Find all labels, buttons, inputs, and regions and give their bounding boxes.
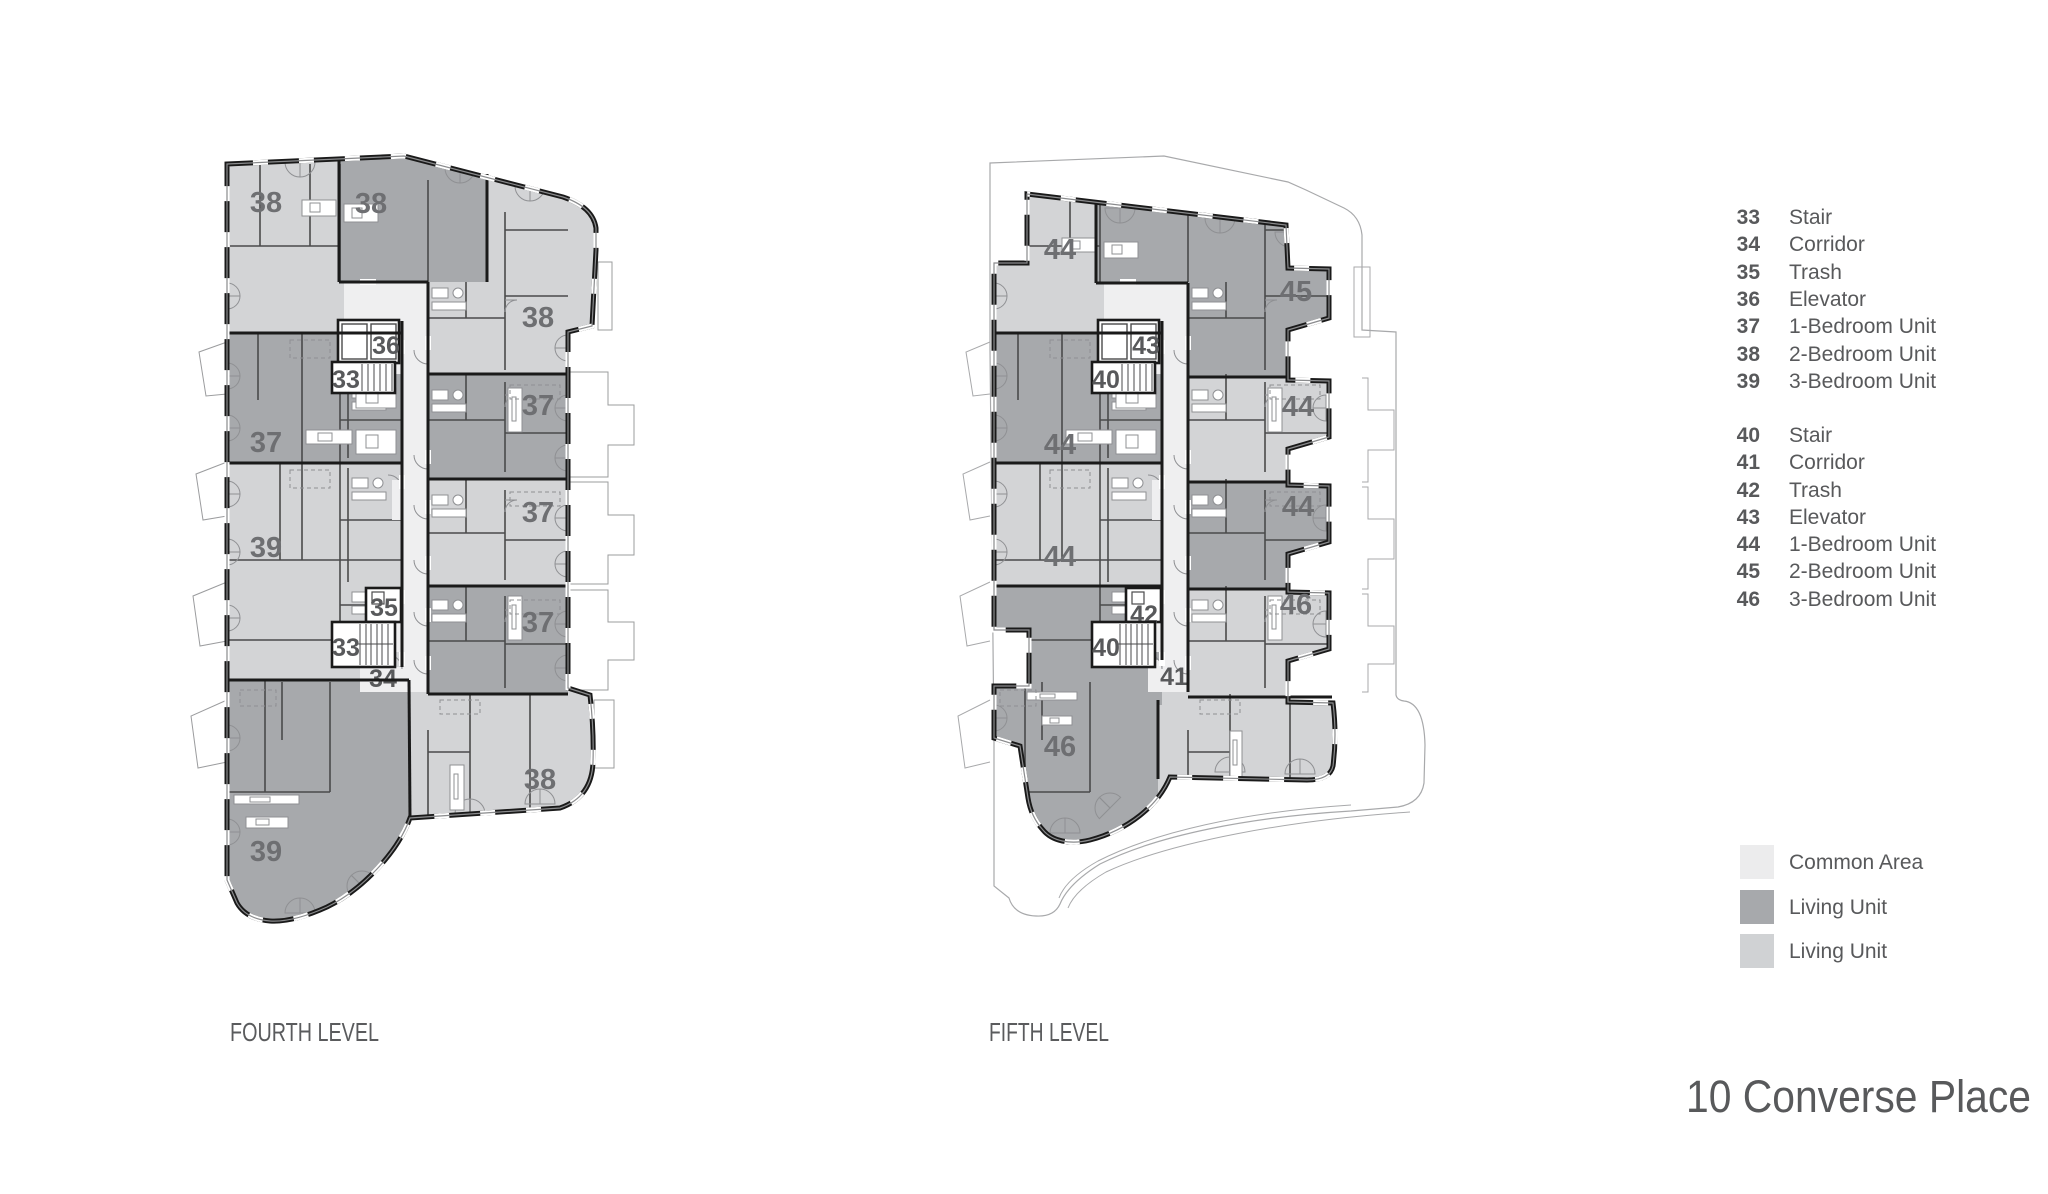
svg-text:43: 43: [1132, 332, 1160, 360]
svg-text:Living Unit: Living Unit: [1789, 896, 1887, 919]
svg-text:45: 45: [1737, 560, 1761, 583]
svg-text:40: 40: [1092, 634, 1120, 662]
svg-text:44: 44: [1044, 429, 1076, 461]
svg-text:FIFTH LEVEL: FIFTH LEVEL: [989, 1017, 1109, 1047]
svg-text:36: 36: [372, 332, 400, 360]
svg-text:FOURTH LEVEL: FOURTH LEVEL: [230, 1017, 379, 1047]
svg-text:Living Unit: Living Unit: [1789, 940, 1887, 963]
svg-text:41: 41: [1737, 451, 1761, 474]
svg-text:33: 33: [332, 634, 360, 662]
svg-text:36: 36: [1737, 288, 1760, 311]
svg-text:41: 41: [1160, 663, 1188, 691]
svg-text:39: 39: [250, 532, 282, 564]
svg-text:Corridor: Corridor: [1789, 233, 1865, 256]
svg-text:46: 46: [1280, 589, 1312, 621]
svg-text:46: 46: [1737, 588, 1760, 611]
svg-text:46: 46: [1044, 731, 1076, 763]
svg-text:44: 44: [1044, 234, 1076, 266]
svg-text:33: 33: [332, 366, 360, 394]
svg-text:Corridor: Corridor: [1789, 451, 1865, 474]
svg-text:37: 37: [1737, 315, 1760, 338]
svg-text:38: 38: [250, 187, 282, 219]
svg-text:37: 37: [250, 427, 282, 459]
svg-text:3-Bedroom Unit: 3-Bedroom Unit: [1789, 588, 1936, 611]
svg-text:Stair: Stair: [1789, 424, 1832, 447]
svg-text:10 Converse Place: 10 Converse Place: [1686, 1071, 2031, 1122]
svg-text:44: 44: [1282, 391, 1314, 423]
svg-text:40: 40: [1737, 424, 1760, 447]
svg-text:38: 38: [355, 188, 387, 220]
svg-text:38: 38: [524, 764, 556, 796]
svg-text:3-Bedroom Unit: 3-Bedroom Unit: [1789, 370, 1936, 393]
svg-text:2-Bedroom Unit: 2-Bedroom Unit: [1789, 343, 1936, 366]
svg-text:Stair: Stair: [1789, 206, 1832, 229]
svg-text:1-Bedroom Unit: 1-Bedroom Unit: [1789, 315, 1936, 338]
svg-text:44: 44: [1737, 533, 1761, 556]
svg-text:40: 40: [1092, 366, 1120, 394]
svg-text:33: 33: [1737, 206, 1760, 229]
svg-text:44: 44: [1044, 541, 1076, 573]
svg-text:37: 37: [522, 390, 554, 422]
svg-text:42: 42: [1737, 479, 1760, 502]
svg-text:Trash: Trash: [1789, 261, 1842, 284]
svg-text:Common Area: Common Area: [1789, 851, 1924, 874]
svg-text:45: 45: [1280, 276, 1312, 308]
svg-text:35: 35: [1737, 261, 1761, 284]
svg-text:39: 39: [1737, 370, 1760, 393]
svg-text:37: 37: [522, 497, 554, 529]
svg-text:1-Bedroom Unit: 1-Bedroom Unit: [1789, 533, 1936, 556]
svg-text:38: 38: [1737, 343, 1761, 366]
svg-text:34: 34: [1737, 233, 1761, 256]
svg-text:2-Bedroom Unit: 2-Bedroom Unit: [1789, 560, 1936, 583]
svg-text:43: 43: [1737, 506, 1760, 529]
svg-text:35: 35: [370, 594, 398, 622]
svg-text:Elevator: Elevator: [1789, 288, 1866, 311]
svg-text:Trash: Trash: [1789, 479, 1842, 502]
svg-text:44: 44: [1282, 491, 1314, 523]
svg-text:Elevator: Elevator: [1789, 506, 1866, 529]
svg-text:37: 37: [522, 607, 554, 639]
svg-text:38: 38: [522, 302, 554, 334]
svg-text:39: 39: [250, 836, 282, 868]
